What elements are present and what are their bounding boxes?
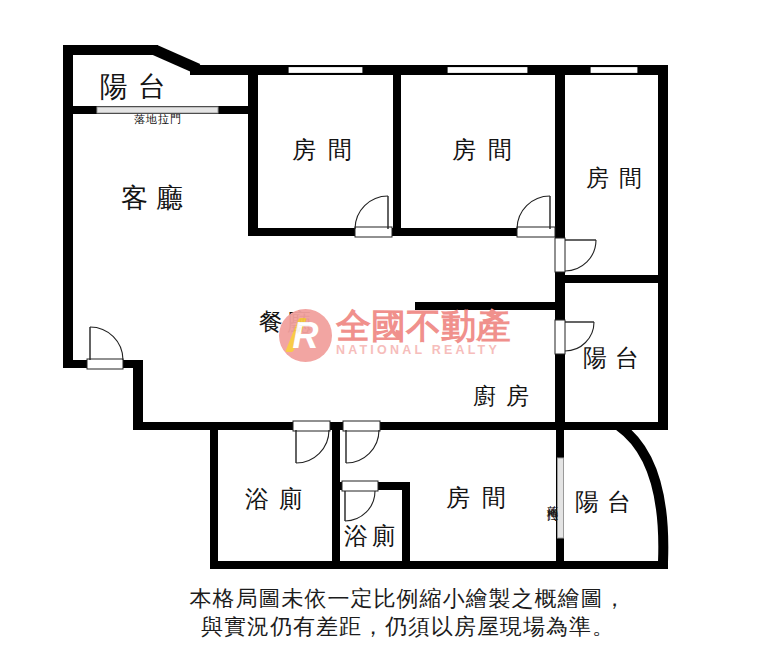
door-balcony-right-threshold — [555, 320, 565, 354]
wall-top-left — [63, 45, 158, 55]
sliding-door-top-label: 落地拉門 — [134, 114, 182, 125]
door-bedroom1-threshold — [355, 227, 392, 237]
sliding-door-bottom-label: 落地拉門 — [547, 496, 558, 504]
door-bath1-arc — [296, 430, 329, 463]
wall-bath1-right — [332, 422, 340, 569]
door-bedroom2-arc — [517, 196, 550, 229]
room-label-kitchen: 廚房 — [463, 385, 539, 408]
room-label-bedroom2: 房間 — [440, 138, 524, 162]
floorplan-page: 陽台 落地拉門 客廳 房間 房間 房間 餐廳 廚房 陽台 浴廁 浴廁 房間 陽台… — [0, 0, 779, 666]
door-entry-arc — [90, 327, 123, 360]
room-label-balcony-top: 陽台 — [90, 73, 176, 101]
door-bedroom1-arc — [355, 196, 388, 229]
door-bedroom4-threshold — [343, 421, 380, 431]
window-bedroom1 — [288, 67, 363, 74]
wall-hall-right-b — [555, 353, 565, 430]
wall-bedroom3-bottom — [555, 275, 668, 283]
window-bedroom2 — [447, 67, 528, 74]
door-bedroom4-arc — [346, 430, 379, 463]
wall-left — [63, 45, 73, 368]
room-label-bath1: 浴廁 — [235, 487, 313, 511]
wall-rooms-bottom-b — [392, 228, 517, 236]
room-label-bedroom3: 房間 — [576, 167, 652, 190]
watermark-brand-name-en: NATIONAL REALTY — [336, 343, 511, 357]
watermark-brand-name: 全國不動產 — [336, 309, 511, 342]
wall-entry-left — [63, 360, 87, 368]
room-label-bedroom1: 房間 — [280, 138, 364, 162]
room-label-bedroom4: 房間 — [434, 486, 518, 510]
door-entry-threshold — [87, 359, 123, 369]
wall-right — [658, 65, 668, 430]
watermark-text: 全國不動產 NATIONAL REALTY — [336, 309, 511, 357]
room-label-balcony-bottom: 陽台 — [567, 490, 639, 514]
room-label-balcony-right: 陽台 — [575, 346, 647, 370]
wall-bedroom2-3-divider — [555, 65, 565, 238]
wall-bottom-block-left — [210, 422, 218, 569]
room-label-bath2: 浴廁 — [340, 524, 400, 548]
disclaimer-line1: 本格局圖未依一定比例縮小繪製之概繪圖， — [37, 585, 779, 613]
wall-living-right — [248, 65, 258, 236]
logo-letter: R — [279, 309, 332, 362]
door-bedroom3-threshold — [555, 238, 565, 272]
wall-bath2-right — [402, 482, 410, 569]
room-label-living: 客廳 — [113, 184, 191, 211]
disclaimer-line2: 與實況仍有差距，仍須以房屋現場為準。 — [37, 613, 779, 641]
wall-bottom — [210, 561, 668, 569]
door-bath1-threshold — [293, 421, 330, 431]
door-bedroom3-arc — [565, 240, 596, 271]
watermark-logo: R 全國不動產 NATIONAL REALTY — [279, 309, 511, 362]
wall-bath2-top-a — [332, 482, 342, 490]
wall-top-diagonal — [155, 50, 198, 69]
wall-bedroom1-2-divider — [393, 65, 401, 236]
disclaimer-text: 本格局圖未依一定比例縮小繪製之概繪圖， 與實況仍有差距，仍須以房屋現場為準。 — [37, 585, 779, 641]
logo-circle-icon: R — [279, 309, 332, 362]
wall-step-vertical — [133, 360, 143, 430]
door-bath2-threshold — [342, 481, 378, 491]
door-bath2-arc — [345, 491, 375, 521]
window-bedroom3 — [590, 67, 638, 74]
wall-rooms-bottom-a — [248, 228, 355, 236]
